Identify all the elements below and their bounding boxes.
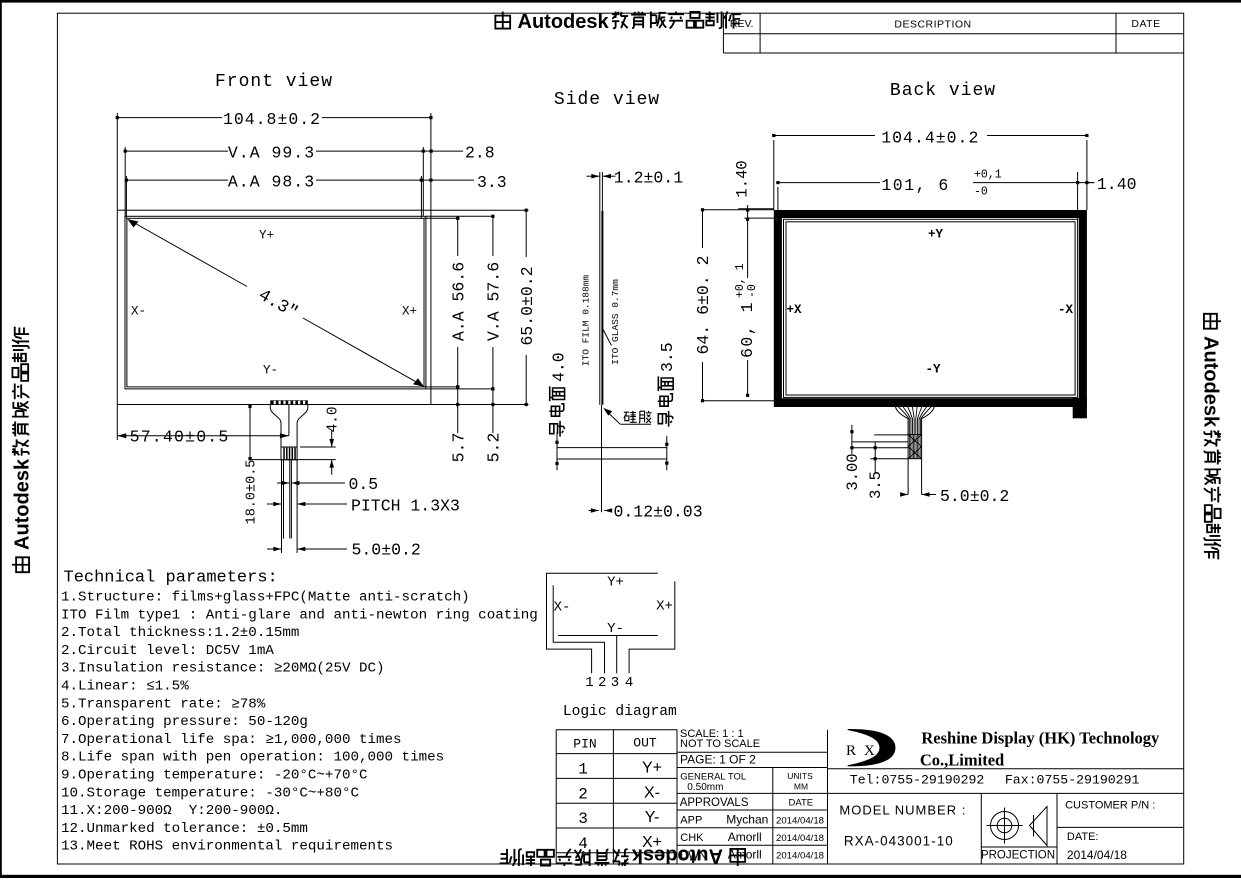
svg-text:1.40: 1.40 (734, 160, 752, 197)
svg-text:4.0: 4.0 (549, 352, 568, 382)
svg-text:Logic diagram: Logic diagram (563, 704, 677, 720)
svg-text:PROJECTION: PROJECTION (981, 850, 1055, 862)
svg-text:1.40: 1.40 (1097, 175, 1137, 194)
svg-text:4: 4 (625, 675, 633, 691)
svg-text:3.00: 3.00 (844, 453, 862, 490)
svg-text:Tel:0755-29190292: Tel:0755-29190292 (850, 773, 985, 788)
svg-text:5.7: 5.7 (449, 433, 468, 463)
svg-text:Side view: Side view (554, 90, 660, 110)
svg-text:3.Insulation resistance: ≥20MΩ: 3.Insulation resistance: ≥20MΩ(25V DC) (61, 661, 385, 677)
svg-text:7.Operational life spa: ≥1,000: 7.Operational life spa: ≥1,000,000 times (61, 732, 402, 748)
svg-text:X-: X- (554, 600, 571, 616)
svg-text:ITO Film type1 : Anti-glare an: ITO Film type1 : Anti-glare and anti-new… (61, 607, 538, 623)
svg-text:+0,1: +0,1 (974, 169, 1002, 182)
svg-text:104.4±0.2: 104.4±0.2 (881, 128, 979, 147)
svg-text:RXA-043001-10: RXA-043001-10 (844, 834, 954, 849)
svg-text:6.Operating pressure: 50-120g: 6.Operating pressure: 50-120g (61, 714, 308, 730)
svg-text:+X: +X (786, 303, 802, 317)
svg-text:18.0±0.5: 18.0±0.5 (245, 460, 260, 525)
svg-text:2.Circuit level: DC5V 1mA: 2.Circuit level: DC5V 1mA (61, 643, 274, 659)
svg-text:2014/04/18: 2014/04/18 (1067, 848, 1127, 862)
svg-text:PAGE: 1 OF 2: PAGE: 1 OF 2 (680, 753, 756, 767)
svg-text:X+: X+ (402, 305, 417, 319)
svg-text:11.X:200-900Ω Y:200-900Ω.: 11.X:200-900Ω Y:200-900Ω. (61, 803, 282, 819)
svg-text:DATE:: DATE: (1067, 831, 1099, 843)
svg-text:X+: X+ (656, 599, 673, 615)
svg-text:-Y: -Y (925, 363, 941, 377)
svg-text:0.50mm: 0.50mm (687, 782, 723, 793)
svg-text:Technical parameters:: Technical parameters: (64, 569, 278, 588)
svg-text:1: 1 (585, 675, 593, 691)
svg-text:Co.,Limited: Co.,Limited (920, 750, 1004, 769)
svg-text:Back view: Back view (890, 81, 996, 101)
svg-text:X-: X- (644, 784, 660, 801)
svg-text:3.5: 3.5 (658, 342, 677, 372)
svg-text:60, 1: 60, 1 (738, 301, 757, 358)
svg-text:CUSTOMER P/N :: CUSTOMER P/N : (1065, 800, 1155, 812)
svg-text:Y-: Y- (263, 364, 278, 378)
svg-text:1.Structure: films+glass+FPC(M: 1.Structure: films+glass+FPC(Matte anti-… (61, 590, 470, 606)
svg-text:0.5: 0.5 (349, 475, 379, 494)
svg-text:5.0±0.2: 5.0±0.2 (940, 487, 1009, 506)
svg-text:Mychan: Mychan (726, 812, 768, 826)
svg-text:101, 6: 101, 6 (881, 176, 949, 195)
svg-text:5.0±0.2: 5.0±0.2 (352, 541, 421, 560)
svg-text:2: 2 (578, 785, 588, 803)
svg-text:REV.: REV. (730, 18, 754, 30)
svg-text:Fax:0755-29190291: Fax:0755-29190291 (1005, 773, 1140, 788)
svg-text:5.Transparent rate: ≥78%: 5.Transparent rate: ≥78% (61, 696, 266, 712)
svg-text:Y+: Y+ (642, 760, 662, 777)
svg-text:MODEL NUMBER :: MODEL NUMBER : (839, 803, 966, 818)
svg-text:4.Linear: ≤1.5%: 4.Linear: ≤1.5% (61, 679, 189, 695)
svg-text:1: 1 (578, 761, 588, 779)
svg-text:DESCRIPTION: DESCRIPTION (894, 19, 971, 31)
svg-text:Y-: Y- (645, 809, 660, 826)
svg-text:9.Operating temperature: -20°C: 9.Operating temperature: -20°C~+70°C (61, 768, 368, 784)
svg-text:8.Life span with pen operation: 8.Life span with pen operation: 100,000 … (61, 750, 444, 766)
svg-text:2014/04/18: 2014/04/18 (776, 851, 824, 862)
svg-text:3: 3 (578, 810, 588, 828)
svg-text:Y+: Y+ (259, 229, 274, 243)
svg-text:10.Storage temperature: -30°C~: 10.Storage temperature: -30°C~+80°C (61, 785, 359, 801)
svg-text:V.A 99.3: V.A 99.3 (228, 143, 315, 162)
svg-text:-0: -0 (746, 284, 759, 298)
svg-text:DATE: DATE (1131, 18, 1160, 30)
svg-text:X-: X- (131, 305, 146, 319)
svg-text:5.2: 5.2 (485, 433, 504, 463)
svg-text:-X: -X (1058, 303, 1074, 317)
svg-text:NOT TO SCALE: NOT TO SCALE (680, 738, 760, 750)
svg-text:1.2±0.1: 1.2±0.1 (614, 169, 683, 188)
svg-text:2.Total thickness:1.2±0.15mm: 2.Total thickness:1.2±0.15mm (61, 625, 299, 641)
svg-text:A.A 56.6: A.A 56.6 (449, 262, 468, 341)
svg-text:12.Unmarked tolerance: ±0.5mm: 12.Unmarked tolerance: ±0.5mm (61, 821, 308, 837)
svg-text:OUT: OUT (633, 736, 657, 751)
svg-text:V.A 57.6: V.A 57.6 (485, 262, 504, 341)
svg-text:R: R (846, 743, 856, 759)
svg-text:X: X (864, 743, 875, 759)
svg-text:Reshine Display (HK) Technolog: Reshine Display (HK) Technology (921, 729, 1160, 748)
svg-text:UNITS: UNITS (787, 771, 813, 781)
svg-text:+Y: +Y (928, 228, 944, 242)
svg-text:Y-: Y- (607, 621, 624, 637)
svg-text:A.A 98.3: A.A 98.3 (228, 173, 315, 192)
svg-text:ITO FILM 0.188mm: ITO FILM 0.188mm (581, 275, 592, 367)
svg-text:65.0±0.2: 65.0±0.2 (518, 266, 537, 345)
svg-text:2.8: 2.8 (465, 143, 495, 162)
svg-text:PITCH 1.3X3: PITCH 1.3X3 (351, 497, 460, 516)
svg-text:DATE: DATE (788, 798, 813, 809)
svg-text:13.Meet ROHS environmental req: 13.Meet ROHS environmental requirements (61, 839, 393, 855)
svg-text:Amorll: Amorll (728, 830, 762, 844)
svg-text:APPROVALS: APPROVALS (680, 797, 749, 809)
svg-text:104.8±0.2: 104.8±0.2 (223, 110, 321, 129)
svg-text:3: 3 (611, 675, 619, 691)
svg-text:4: 4 (578, 835, 588, 853)
svg-text:3.5: 3.5 (867, 471, 885, 499)
svg-text:57.40±0.5: 57.40±0.5 (130, 428, 230, 447)
svg-text:GENERAL TOL: GENERAL TOL (680, 772, 746, 783)
svg-text:0.12±0.03: 0.12±0.03 (614, 503, 703, 522)
svg-text:MM: MM (794, 782, 808, 792)
svg-text:3.3: 3.3 (477, 173, 507, 192)
svg-text:CHK: CHK (680, 832, 704, 844)
svg-text:Front view: Front view (215, 72, 333, 92)
svg-text:-0: -0 (974, 186, 988, 199)
svg-text:X+: X+ (642, 834, 662, 851)
svg-text:Amorll: Amorll (728, 848, 762, 862)
svg-text:DWN: DWN (680, 850, 706, 862)
svg-text:2: 2 (598, 675, 606, 691)
svg-text:Y+: Y+ (607, 575, 624, 591)
svg-text:2014/04/18: 2014/04/18 (776, 815, 824, 826)
svg-text:PIN: PIN (573, 737, 596, 752)
svg-text:ITO GLASS 0.7mm: ITO GLASS 0.7mm (610, 279, 621, 365)
svg-text:4.0: 4.0 (326, 406, 342, 432)
svg-text:APP: APP (680, 814, 702, 826)
svg-text:64. 6±0. 2: 64. 6±0. 2 (694, 255, 713, 354)
svg-text:2014/04/18: 2014/04/18 (776, 833, 824, 844)
